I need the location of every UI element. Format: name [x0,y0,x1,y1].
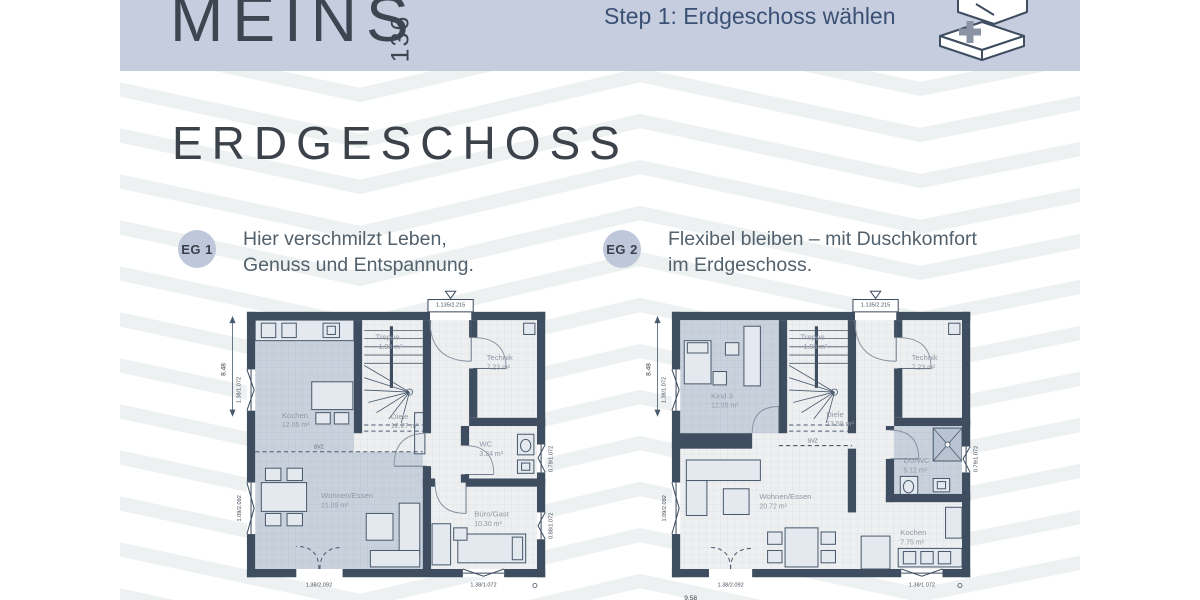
shower-icon [933,428,962,461]
svg-text:Technik: Technik [912,353,938,362]
floor-plan-eg1: SVZ Kochen 12.05 m² Treppe 1.93 m² Techn… [216,281,571,600]
brand-logo: MEINS [170,0,418,51]
svg-text:Technik: Technik [487,353,513,362]
svg-text:1.135/2.215: 1.135/2.215 [436,303,465,309]
storage-label: SVZ [808,438,818,444]
svg-text:Kochen: Kochen [900,528,926,537]
svg-text:9.58: 9.58 [684,595,697,600]
svg-text:1.135/2.215: 1.135/2.215 [861,303,890,309]
svg-text:Diele: Diele [826,410,844,419]
svg-text:7.75 m²: 7.75 m² [900,539,924,546]
svg-text:Diele: Diele [391,412,409,421]
svg-text:20.72 m²: 20.72 m² [759,503,787,510]
floor-plan-eg2: SVZ Kind 3 12.05 m² Treppe 1.93 m² Techn… [641,281,996,600]
svg-text:8.48: 8.48 [645,363,652,376]
svg-text:Kochen: Kochen [282,411,308,420]
svg-text:0.79/1.072: 0.79/1.072 [973,446,979,472]
svg-text:DU/WC: DU/WC [903,456,930,465]
svg-text:10.30 m²: 10.30 m² [474,521,502,528]
svg-text:1.38/1.072: 1.38/1.072 [662,377,668,403]
svg-text:0.88/1.072: 0.88/1.072 [548,513,554,539]
page: MEINS 136 Step 1: Erdgeschoss wählen ERD… [0,0,1200,600]
svg-text:1.93 m²: 1.93 m² [379,344,403,351]
svg-text:12.05 m²: 12.05 m² [711,403,739,410]
svg-text:Treppe: Treppe [376,333,400,342]
svg-text:1.38/1.072: 1.38/1.072 [909,582,935,588]
svg-text:Wohnen/Essen: Wohnen/Essen [759,492,811,501]
svg-text:Treppe: Treppe [801,333,825,342]
svg-text:Wohnen/Essen: Wohnen/Essen [321,491,373,500]
svg-text:1.38/1.072: 1.38/1.072 [237,377,243,403]
header-bar: MEINS 136 Step 1: Erdgeschoss wählen [120,0,1080,71]
svg-text:1.38/2.092: 1.38/2.092 [717,582,743,588]
option-card-eg1[interactable]: EG 1 Hier verschmilzt Leben,Genuss und E… [165,222,595,600]
svg-text:1.38/2.092: 1.38/2.092 [306,582,332,588]
eg1-badge[interactable]: EG 1 [178,230,216,268]
option-card-eg2[interactable]: EG 2 Flexibel bleiben – mit Duschkomfort… [590,222,1020,600]
page-title: ERDGESCHOSS [172,116,629,170]
svg-text:12.27 m²: 12.27 m² [391,423,419,430]
svg-text:5.12 m²: 5.12 m² [903,467,927,474]
add-floor-icon [932,0,1028,64]
svg-text:Kind 3: Kind 3 [711,391,733,400]
svg-text:12.05 m²: 12.05 m² [282,422,310,429]
eg2-description: Flexibel bleiben – mit Duschkomfortim Er… [668,226,977,278]
svg-text:8.48: 8.48 [220,363,227,376]
svg-text:7.23 m²: 7.23 m² [487,364,511,371]
svg-text:3.34 m²: 3.34 m² [479,451,503,458]
svg-text:1.09/2.092: 1.09/2.092 [662,495,668,521]
svg-text:21.09 m²: 21.09 m² [321,502,349,509]
eg1-description: Hier verschmilzt Leben,Genuss und Entspa… [243,226,474,278]
svg-text:1.09/2.092: 1.09/2.092 [237,495,243,521]
svg-text:7.23 m²: 7.23 m² [912,364,936,371]
svg-text:0.79/1.072: 0.79/1.072 [548,446,554,472]
svg-text:1.93 m²: 1.93 m² [804,344,828,351]
svg-text:1.38/1.072: 1.38/1.072 [470,582,496,588]
svg-text:13.59 m²: 13.59 m² [826,421,854,428]
brand-number: 136 [387,4,416,72]
storage-label: SVZ [314,445,324,451]
svg-text:WC: WC [479,440,492,449]
step-label: Step 1: Erdgeschoss wählen [604,3,896,30]
eg2-badge[interactable]: EG 2 [603,230,641,268]
svg-text:Büro/Gast: Büro/Gast [474,510,510,519]
